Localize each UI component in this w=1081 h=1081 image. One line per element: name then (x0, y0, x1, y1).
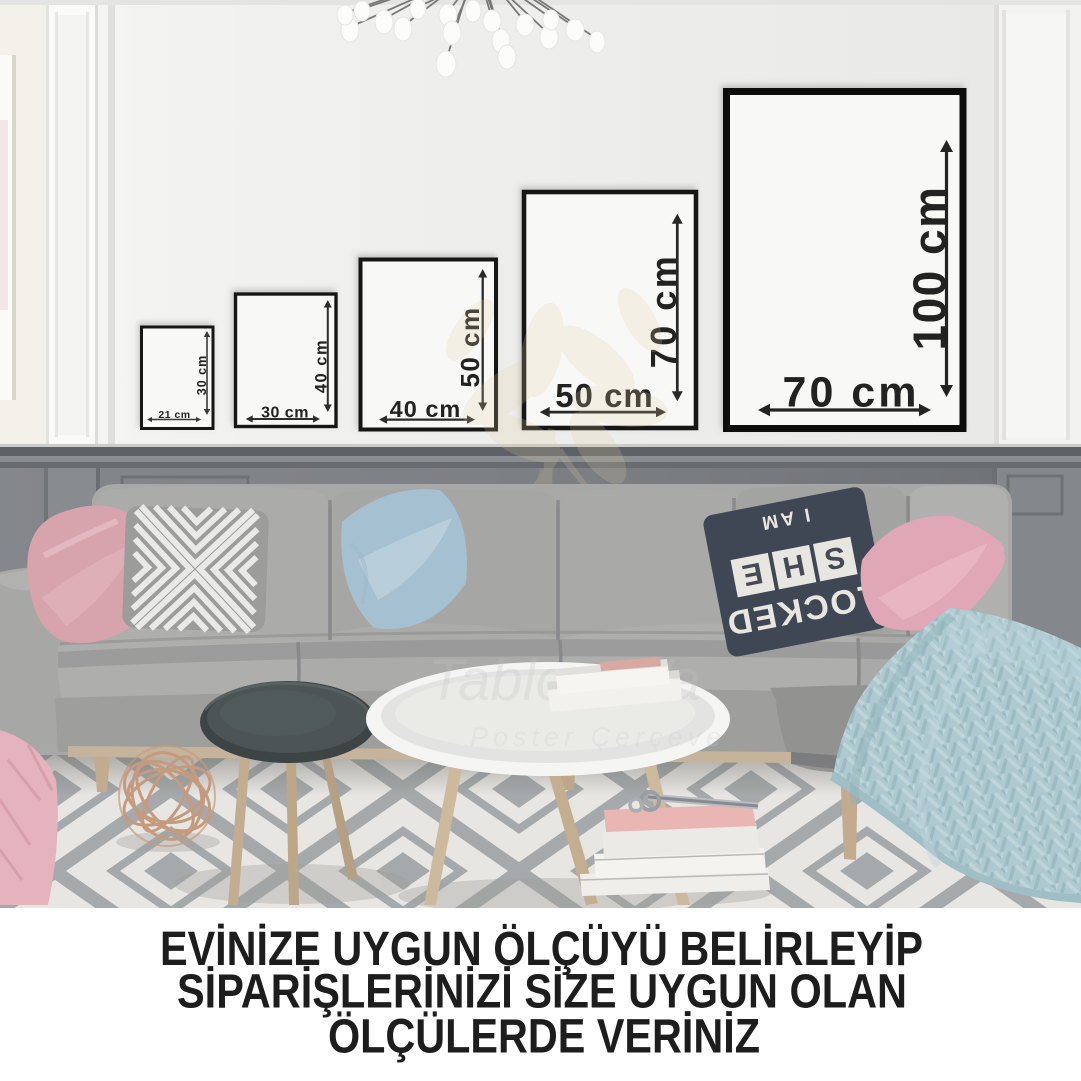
svg-text:30 cm: 30 cm (195, 355, 209, 395)
svg-text:ÖLÇÜLERDE VERİNİZ: ÖLÇÜLERDE VERİNİZ (328, 1011, 760, 1064)
svg-text:100 cm: 100 cm (904, 185, 956, 350)
svg-text:Poster Çerçeve: Poster Çerçeve (470, 722, 726, 752)
svg-text:70 cm: 70 cm (783, 369, 920, 417)
svg-text:40 cm: 40 cm (313, 339, 331, 393)
svg-text:30 cm: 30 cm (261, 405, 309, 422)
svg-text:21 cm: 21 cm (158, 409, 190, 421)
svg-text:40 cm: 40 cm (390, 396, 462, 422)
